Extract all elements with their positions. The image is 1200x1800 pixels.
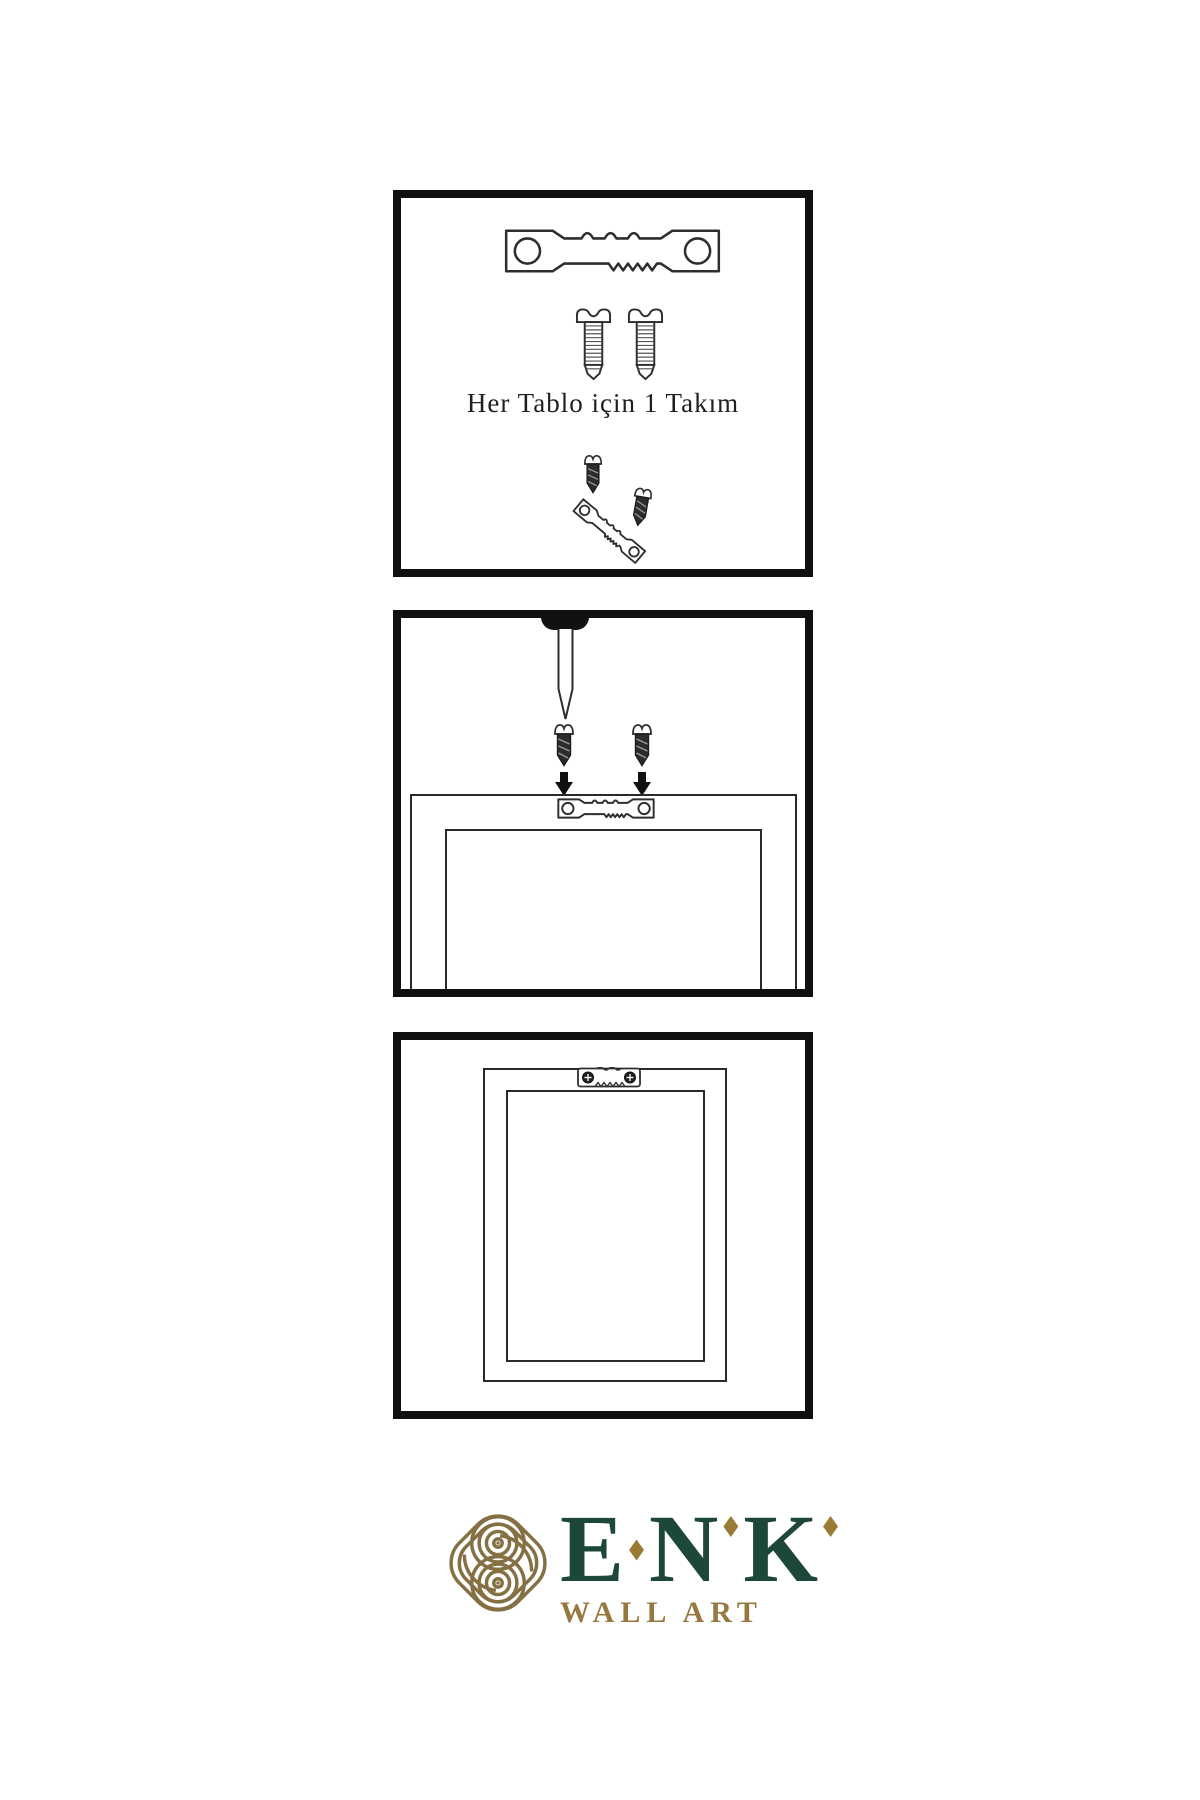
brand-lockup: E N K WALL ART bbox=[560, 1508, 843, 1630]
step-panel-installation bbox=[393, 610, 813, 997]
sawtooth-hanger-mounted-icon bbox=[554, 795, 658, 822]
brand-letter-n: N bbox=[649, 1508, 718, 1592]
frame-back-inner-edge bbox=[445, 829, 762, 997]
nail-icon bbox=[557, 629, 574, 721]
kit-caption: Her Tablo için 1 Takım bbox=[401, 388, 805, 419]
diamond-icon bbox=[723, 1516, 738, 1537]
diamond-icon bbox=[629, 1540, 644, 1561]
brand-letter-e: E bbox=[560, 1508, 624, 1592]
arrow-down-icon bbox=[633, 772, 651, 796]
arrow-down-icon bbox=[555, 772, 573, 796]
sawtooth-hanger-screwed-icon bbox=[577, 1067, 641, 1088]
dark-screw-icon bbox=[553, 722, 575, 768]
screw-icon bbox=[627, 305, 664, 382]
dark-screw-icon bbox=[631, 722, 653, 768]
dark-screw-icon bbox=[583, 453, 603, 495]
brand-name: E N K bbox=[560, 1508, 843, 1592]
brand-knot-logo-icon bbox=[435, 1500, 561, 1626]
diamond-icon bbox=[823, 1516, 838, 1537]
dark-screw-icon bbox=[628, 485, 655, 530]
product-instruction-sheet: Her Tablo için 1 Takım bbox=[0, 0, 1200, 1800]
sawtooth-hanger-icon bbox=[495, 222, 730, 280]
step-panel-hung-frame bbox=[393, 1032, 813, 1419]
brand-letter-k: K bbox=[743, 1508, 818, 1592]
brand-tagline: WALL ART bbox=[560, 1596, 843, 1630]
hung-frame-inner-edge bbox=[506, 1090, 705, 1362]
step-panel-hardware-kit: Her Tablo için 1 Takım bbox=[393, 190, 813, 577]
screw-icon bbox=[575, 305, 612, 382]
